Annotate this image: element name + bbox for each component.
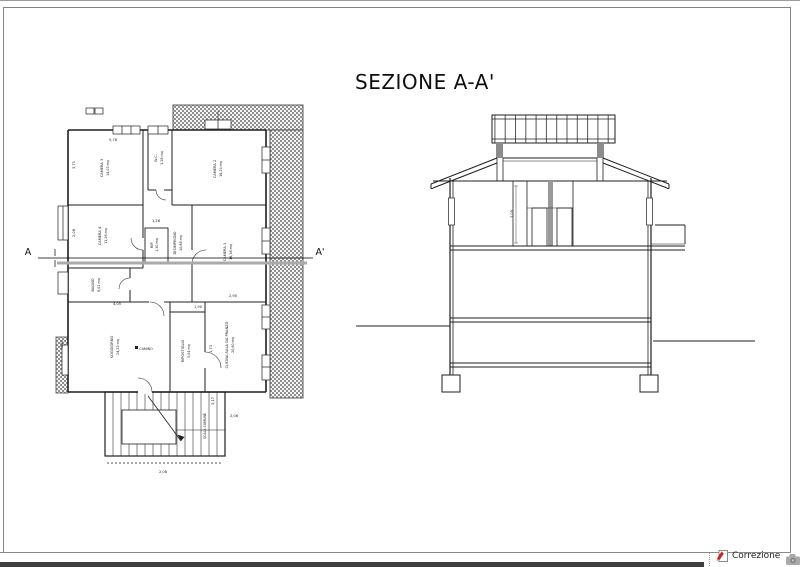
dimension-label: 2,08: [72, 228, 76, 237]
staircase: [105, 392, 225, 463]
room-area: 18,23 mq: [219, 161, 223, 177]
room-area: 20,60 mq: [231, 337, 235, 353]
room-area: 3,28 mq: [160, 151, 164, 165]
correzione-button[interactable]: Correzione: [716, 548, 780, 564]
room-label: CAMERA 3: [100, 159, 104, 178]
room-area: 14,03 mq: [106, 160, 110, 176]
room-label: CAMERA 1: [223, 243, 227, 262]
floor-plan: A A' CAMERA 3 14,03 mq CAMERA 2 18,23 mq…: [25, 105, 325, 474]
window-symbols: [58, 108, 270, 380]
statusbar-divider: [0, 552, 791, 553]
statusbar-dark-bar: [0, 562, 704, 567]
viewer-window: A A' CAMERA 3 14,03 mq CAMERA 2 18,23 mq…: [0, 0, 800, 567]
room-area: 24,22 mq: [116, 339, 120, 355]
interior-walls: [68, 130, 266, 392]
attic-interior: [513, 181, 573, 246]
room-label: SCALA COMUNE: [203, 413, 207, 439]
room-label: CAMERA 2: [213, 160, 217, 179]
fireplace-label: CAMINO: [139, 347, 153, 351]
camera-tool-button[interactable]: [786, 551, 800, 567]
dimension-label: 4,40: [60, 339, 64, 348]
room-area: 6,02 mq: [97, 278, 101, 292]
fireplace-symbol: [135, 346, 138, 349]
room-area: 11,26 mq: [104, 228, 108, 244]
section-marker-a: A: [25, 247, 32, 258]
balcony: [651, 225, 685, 244]
dimension-label: 1,90: [194, 305, 203, 309]
camera-icon: [786, 553, 800, 566]
room-label: SOGGIORNO: [110, 336, 114, 359]
room-area: 10,88 mq: [179, 235, 183, 251]
section-drawing: 3,05: [356, 115, 755, 392]
room-label: CAMERA 4: [98, 226, 102, 245]
room-label: RIPOSTIGLIO: [181, 339, 185, 362]
footings: [442, 375, 658, 392]
dimension-label: 2,06: [230, 414, 239, 418]
floor-slabs: [450, 246, 685, 367]
ground-lines: [356, 326, 755, 341]
correction-note-icon: [716, 549, 729, 563]
room-label: CUCINA-SALA DA PRANZO: [225, 321, 229, 368]
section-height-dimension: 3,05: [510, 210, 514, 218]
room-area: 16,38 mq: [229, 244, 233, 260]
room-label: W.C.: [154, 154, 158, 162]
room-label: RIP.: [150, 242, 154, 249]
dimension-label: 2,90: [229, 294, 238, 298]
statusbar-separator: [709, 553, 710, 566]
dimension-label: 2,08: [159, 470, 168, 474]
dimension-label: 1,73: [209, 345, 213, 353]
dimension-label: 3,71: [72, 161, 76, 169]
dimension-label: 1,26: [152, 219, 161, 223]
room-label: DISIMPEGNO: [173, 231, 177, 254]
correzione-label: Correzione: [732, 551, 780, 561]
dimension-label: 4,05: [113, 302, 121, 306]
section-title: SEZIONE A-A': [355, 70, 495, 94]
section-marker-a-prime: A': [315, 247, 324, 258]
roof-railing: [492, 115, 615, 158]
room-area: 5,04 mq: [187, 344, 191, 358]
exterior-walls: [68, 130, 266, 392]
dimension-label: 3,17: [211, 397, 215, 405]
room-area: 1,30 mq: [155, 238, 159, 252]
room-labels: CAMERA 3 14,03 mq CAMERA 2 18,23 mq CAME…: [91, 151, 235, 439]
room-label: BAGNO: [91, 278, 95, 291]
dimension-label: 5,78: [109, 138, 118, 142]
